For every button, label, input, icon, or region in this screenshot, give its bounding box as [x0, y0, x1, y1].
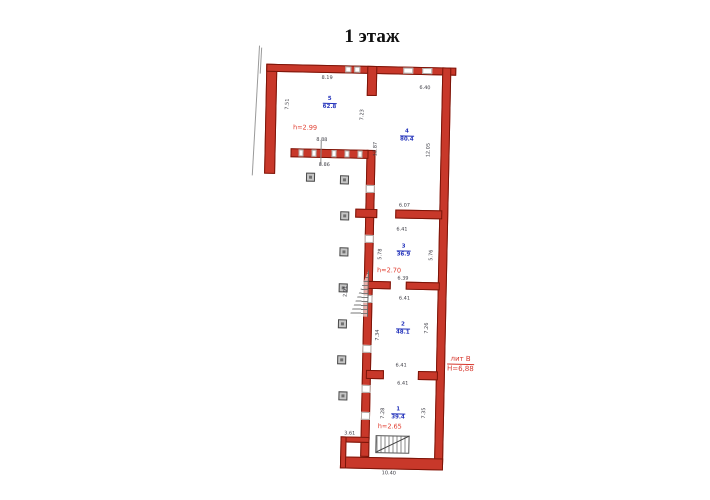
window-opening: [311, 150, 316, 157]
dimension-label: 2.91: [343, 286, 349, 297]
dimensions-layer: 8.196.408.888.866.076.416.396.416.416.41…: [251, 51, 511, 56]
room-label: 480.4: [400, 128, 414, 142]
liter-text: лит В: [447, 355, 474, 366]
plan-wall: [366, 370, 384, 379]
dimension-label: 5.78: [377, 249, 383, 260]
plan-wall: [395, 209, 442, 219]
columns-layer: [251, 51, 511, 56]
column-marker: [306, 173, 315, 182]
window-opening: [403, 68, 413, 74]
window-opening: [422, 68, 432, 74]
page: { "title": "1 этаж", "plan": { "rooms": …: [0, 0, 710, 500]
column-marker: [340, 175, 349, 184]
dimension-label: 7.34: [375, 329, 381, 340]
column-marker: [338, 391, 347, 400]
dimension-label: 8.88: [316, 137, 327, 143]
room-label: 336.9: [397, 243, 411, 257]
page-title: 1 этаж: [0, 26, 710, 48]
dimension-label: 8.86: [319, 162, 330, 168]
window-opening: [331, 150, 336, 157]
dimension-label: 7.23: [359, 109, 365, 120]
dimension-label: 6.41: [397, 381, 408, 387]
column-marker: [339, 247, 348, 256]
room-area: 48.1: [396, 329, 410, 336]
room-area: 39.4: [391, 414, 405, 421]
window-opening: [357, 151, 362, 158]
plan-wall: [434, 67, 451, 467]
building-height-text: Н=6,88: [447, 365, 474, 375]
boundary-line: [260, 48, 262, 74]
stairs: [375, 435, 409, 454]
dimension-label: 5.76: [428, 250, 434, 261]
dimension-label: 6.41: [396, 226, 407, 232]
window-opening: [354, 67, 360, 73]
floor-plan: лит В Н=6,88 562.8480.4336.9248.1139.4h=…: [242, 51, 511, 492]
height-label: h=2.65: [378, 422, 402, 431]
window-opening: [362, 345, 371, 353]
dimension-label: 10.40: [382, 470, 396, 476]
room-area: 36.9: [397, 251, 411, 258]
plan-wall: [406, 282, 440, 291]
column-marker: [340, 211, 349, 220]
dimension-label: 3.61: [344, 430, 355, 436]
window-opening: [345, 66, 351, 72]
window-opening: [298, 149, 303, 156]
window-opening: [365, 235, 374, 243]
window-opening: [361, 412, 370, 420]
column-marker: [337, 355, 346, 364]
plan-wall: [340, 456, 443, 470]
plan-wall: [340, 436, 347, 468]
height-label: h=2.99: [293, 123, 317, 132]
room-area: 80.4: [400, 136, 414, 143]
room-area: 62.8: [323, 103, 337, 110]
dimension-label: 12.87: [372, 142, 378, 156]
dimension-label: 7.35: [421, 407, 427, 418]
boundary-line: [252, 46, 260, 176]
dimension-label: 6.41: [399, 296, 410, 302]
window-opening: [366, 185, 375, 193]
dimension-label: 7.26: [424, 322, 430, 333]
plan-wall: [418, 371, 438, 380]
window-opening: [344, 150, 349, 157]
dimension-label: 7.51: [284, 99, 290, 110]
room-label: 139.4: [391, 406, 405, 420]
plan-wall: [264, 64, 277, 174]
dimension-label: 6.41: [395, 362, 406, 368]
dimension-label: 6.07: [399, 203, 410, 209]
column-marker: [338, 319, 347, 328]
height-label: h=2.70: [377, 266, 401, 275]
room-label: 248.1: [396, 321, 410, 335]
dimension-label: 7.28: [380, 408, 386, 419]
plan-wall: [355, 209, 377, 218]
plan-wall: [367, 66, 378, 96]
building-liter-label: лит В Н=6,88: [447, 355, 474, 375]
rooms-layer: 562.8480.4336.9248.1139.4h=2.99h=2.70h=2…: [251, 51, 511, 56]
dimension-label: 6.40: [419, 85, 430, 91]
dimension-label: 12.05: [425, 143, 431, 157]
window-opening: [362, 385, 371, 393]
dimension-label: 6.39: [397, 276, 408, 282]
room-label: 562.8: [323, 96, 337, 110]
dimension-label: 8.19: [321, 75, 332, 81]
